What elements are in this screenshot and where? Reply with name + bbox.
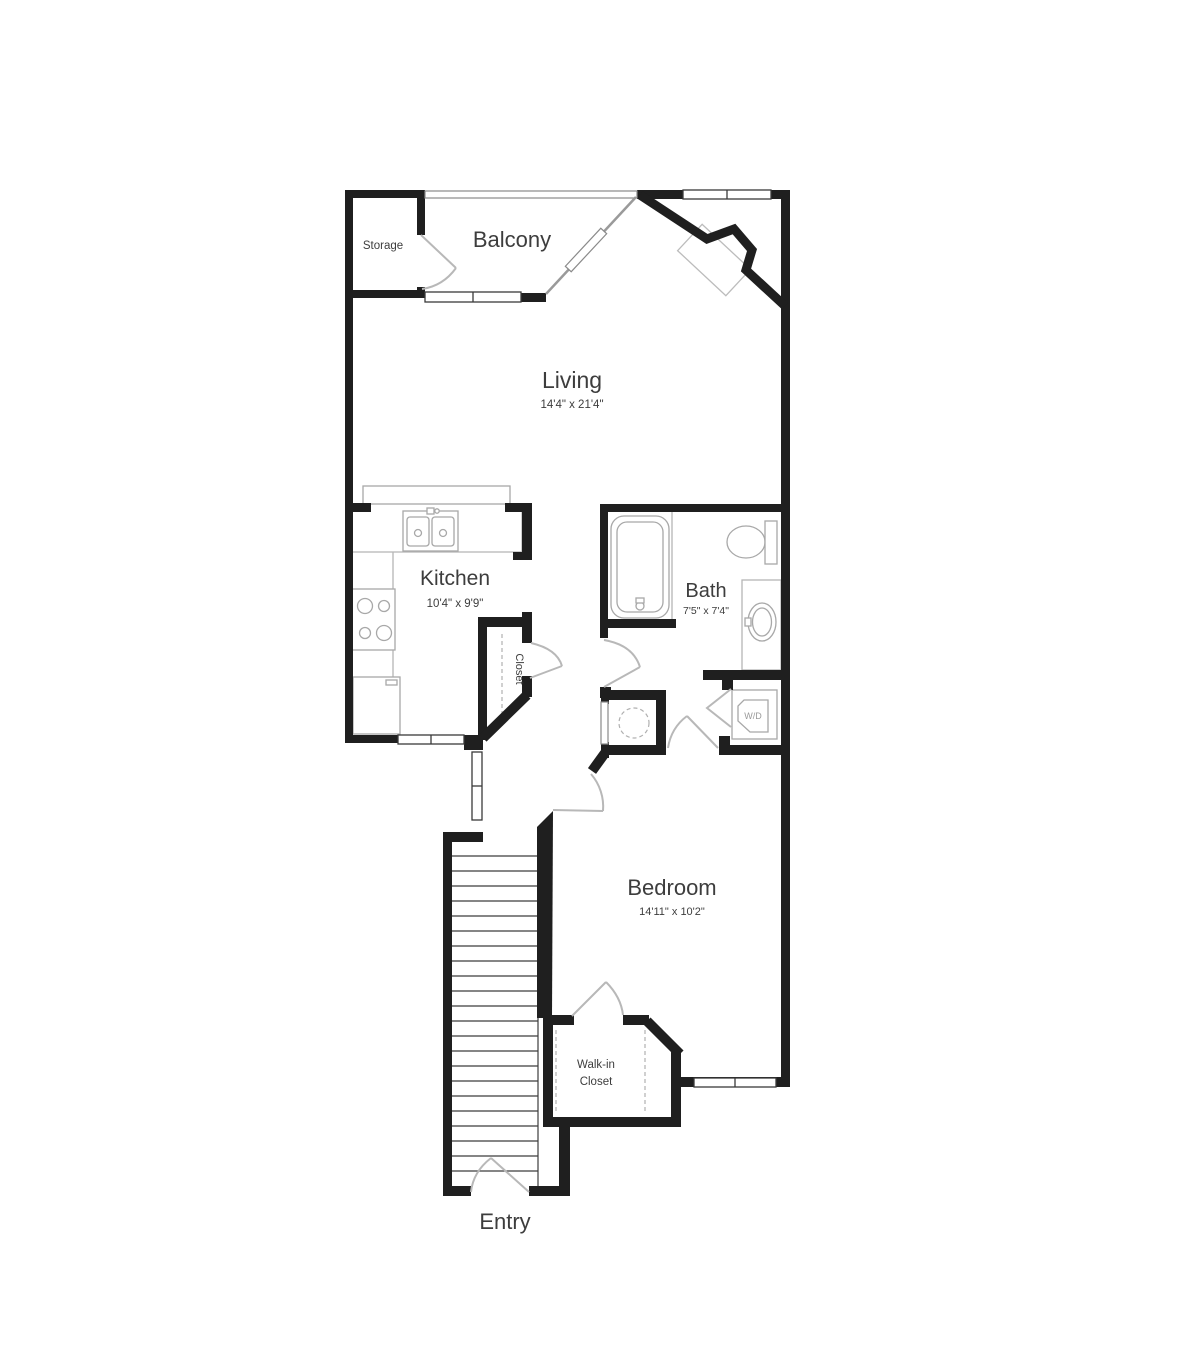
wall-segment [719,745,781,755]
bedroom-dimensions: 14'11" x 10'2" [639,906,705,918]
wall-segment [543,1015,574,1025]
water-heater [619,708,649,738]
living-label: Living [542,367,602,393]
living-dimensions: 14'4" x 21'4" [540,399,603,411]
wall-segment [703,670,781,680]
wall-segment [719,736,730,746]
walk-in-closet-rods [556,1030,645,1112]
wall-segment [345,290,425,298]
wall-segment [781,190,790,1087]
bath-door-swing [604,640,640,687]
wall-segment [443,832,452,1196]
wall-segment [478,617,487,740]
wall-segment [513,552,532,560]
walls [345,190,790,1196]
window [694,1078,776,1087]
bathtub [611,512,672,619]
stairs-bedroom-wall [537,811,553,1018]
wall-segment [559,1117,570,1196]
bedroom-door-swing [553,774,603,811]
wall-segment [600,504,608,638]
wall-segment [345,190,425,198]
window [472,752,482,820]
wall-segment [522,612,532,643]
wall-segment [600,619,676,628]
bath-label: Bath [685,580,726,602]
wall-segment [345,735,398,743]
wall-segment [543,1015,553,1127]
laundry-bifold-door [707,689,731,727]
wall-segment [443,1186,471,1196]
walk-in-closet-label-line2: Closet [580,1076,613,1088]
bedroom-hall-door-swing [668,716,718,748]
bath-dimensions: 7'5" x 7'4" [683,605,729,617]
balcony-railing [425,191,637,198]
wall-segment [349,503,371,512]
wall-segment [601,745,666,755]
wall-segment [722,679,733,690]
storage-door-swing [421,235,456,289]
vanity-sink [742,580,781,670]
wall-segment [520,293,546,302]
kitchen-sink [403,508,458,551]
walk-in-diagonal-wall [647,1021,680,1054]
windows [398,190,776,1087]
walk-in-closet-label-line1: Walk-in [577,1059,615,1071]
entry-label: Entry [479,1209,530,1234]
wall-segment [345,190,353,743]
kitchen-bar-counter [363,486,510,504]
walk-in-closet-door-swing [572,982,623,1016]
bedroom-label: Bedroom [627,875,716,900]
stove [352,589,395,650]
sliding-glass-door [546,197,636,294]
wall-segment [600,504,781,512]
wall-segment [522,503,532,560]
entry-door-swing [471,1158,529,1192]
kitchen-label: Kitchen [420,567,490,590]
stairs [452,843,538,1186]
window [683,190,771,199]
mechanical-closet-panel [601,702,608,744]
closet-label: Closet [513,653,525,684]
floor-plan-canvas: Storage Balcony Living 14'4" x 21'4" Kit… [0,0,1200,1354]
window [425,292,521,302]
closet-diagonal-wall [483,695,527,738]
kitchen-dimensions: 10'4" x 9'9" [427,598,484,610]
washer-dryer-label: W/D [744,711,762,721]
refrigerator [353,677,400,734]
toilet [727,521,777,564]
window [398,735,464,744]
storage-label: Storage [363,240,403,252]
kitchen-closet-door-swing [530,643,562,678]
wall-segment [671,1050,681,1127]
wall-segment [464,735,483,750]
wall-segment [543,1117,681,1127]
wall-segment [592,753,605,771]
wall-segment [417,190,425,235]
balcony-label: Balcony [473,227,551,252]
